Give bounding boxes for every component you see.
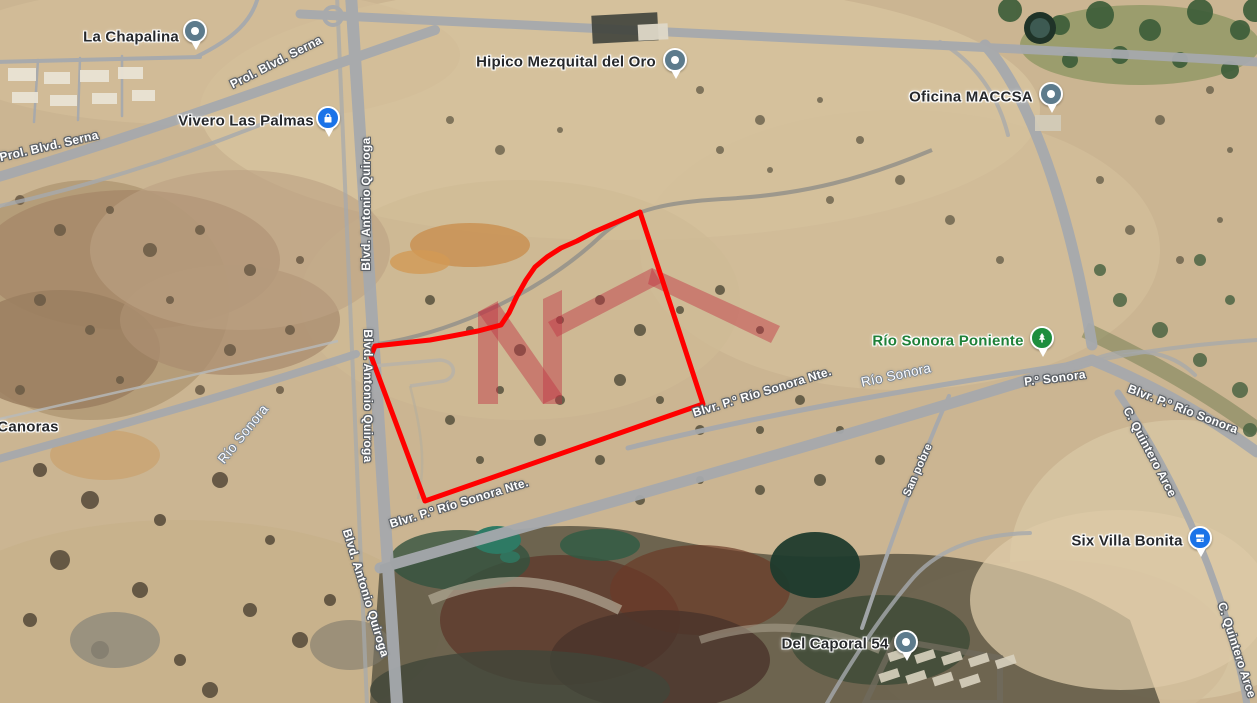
pin-tail bbox=[902, 652, 912, 661]
place-dot-icon bbox=[902, 638, 910, 646]
place-dot-icon bbox=[1047, 90, 1055, 98]
hipico-mezquital-pin[interactable] bbox=[663, 48, 689, 82]
padlock-icon bbox=[322, 112, 334, 124]
satellite-map-viewport[interactable]: Prol. Blvd. Serna Prol. Blvd. Serna Blvd… bbox=[0, 0, 1257, 703]
six-villa-bonita-pin[interactable] bbox=[1188, 526, 1214, 560]
pine-tree-icon bbox=[1036, 332, 1048, 344]
oficina-maccsa-pin[interactable] bbox=[1039, 82, 1065, 116]
pin-tail bbox=[1038, 348, 1048, 357]
del-caporal-54-pin[interactable] bbox=[894, 630, 920, 664]
vivero-las-palmas-pin[interactable] bbox=[316, 106, 342, 140]
rio-sonora-poniente-pin[interactable] bbox=[1030, 326, 1056, 360]
pin-tail bbox=[1047, 104, 1057, 113]
satellite-imagery bbox=[0, 0, 1257, 703]
pin-tail bbox=[671, 70, 681, 79]
pin-tail bbox=[324, 128, 334, 137]
storefront-icon bbox=[1194, 532, 1206, 544]
la-chapalina-pin[interactable] bbox=[183, 19, 209, 53]
pin-tail bbox=[1196, 548, 1206, 557]
place-dot-icon bbox=[191, 27, 199, 35]
pin-tail bbox=[191, 41, 201, 50]
place-dot-icon bbox=[671, 56, 679, 64]
